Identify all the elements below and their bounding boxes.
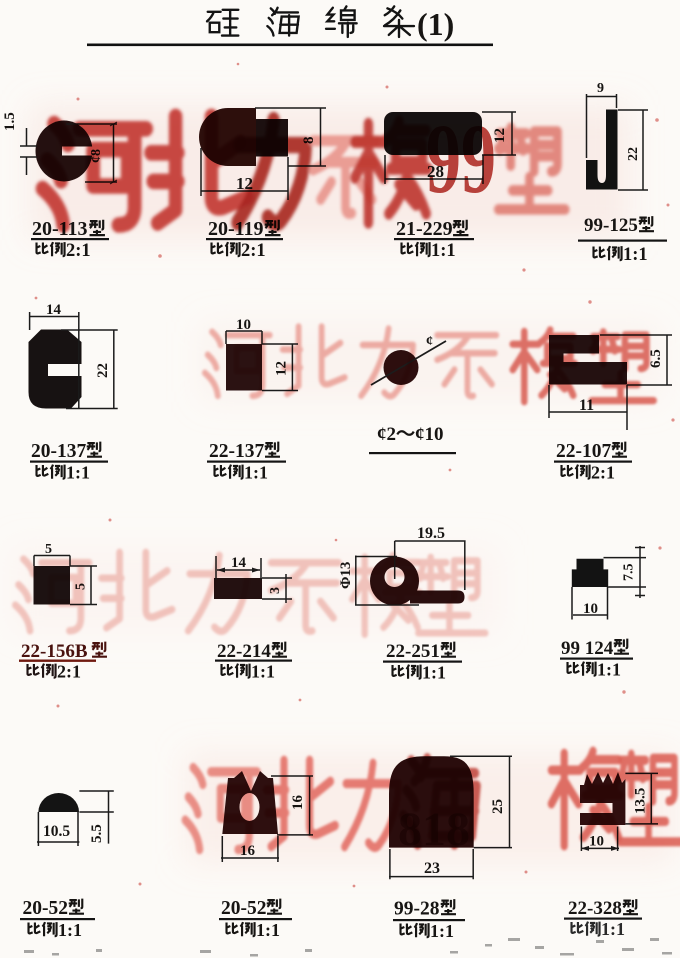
svg-text:22-251: 22-251 bbox=[386, 641, 440, 662]
svg-text:2:1: 2:1 bbox=[591, 463, 615, 483]
svg-text:10.5: 10.5 bbox=[43, 823, 70, 840]
svg-text:14: 14 bbox=[46, 302, 62, 318]
svg-text:1:1: 1:1 bbox=[422, 663, 446, 683]
svg-text:20-52: 20-52 bbox=[23, 898, 69, 919]
svg-text:2:1: 2:1 bbox=[66, 241, 91, 261]
svg-text:2:1: 2:1 bbox=[241, 241, 266, 261]
svg-text:1:1: 1:1 bbox=[66, 463, 90, 483]
svg-text:22-328: 22-328 bbox=[568, 898, 622, 919]
svg-text:1:1: 1:1 bbox=[597, 660, 621, 680]
svg-text:22-156B: 22-156B bbox=[21, 641, 88, 662]
svg-text:1:1: 1:1 bbox=[431, 241, 456, 261]
svg-text:1:1: 1:1 bbox=[430, 921, 454, 941]
svg-text:2:1: 2:1 bbox=[57, 662, 81, 682]
svg-text:99-28: 99-28 bbox=[394, 899, 440, 920]
svg-text:20-52: 20-52 bbox=[221, 898, 267, 919]
svg-text:20-137: 20-137 bbox=[31, 441, 86, 462]
svg-text:1:1: 1:1 bbox=[244, 463, 268, 483]
svg-text:¢2～¢10: ¢2～¢10 bbox=[377, 424, 444, 445]
svg-text:22-214: 22-214 bbox=[217, 641, 271, 662]
svg-text:1:1: 1:1 bbox=[58, 920, 82, 940]
svg-text:1:1: 1:1 bbox=[623, 245, 648, 265]
svg-text:1:1: 1:1 bbox=[601, 919, 625, 939]
svg-text:1:1: 1:1 bbox=[256, 920, 280, 940]
svg-text:1.5: 1.5 bbox=[2, 112, 18, 131]
svg-text:5.5: 5.5 bbox=[89, 824, 105, 843]
svg-text:22-107: 22-107 bbox=[556, 441, 611, 462]
svg-text:9: 9 bbox=[597, 81, 604, 96]
svg-text:19.5: 19.5 bbox=[417, 525, 445, 542]
svg-text:1:1: 1:1 bbox=[251, 662, 275, 682]
svg-text:(1): (1) bbox=[417, 6, 454, 42]
svg-text:7.5: 7.5 bbox=[622, 564, 637, 582]
svg-text:22-137: 22-137 bbox=[209, 441, 264, 462]
svg-text:99 124: 99 124 bbox=[561, 638, 614, 659]
svg-text:22: 22 bbox=[95, 363, 111, 378]
svg-text:10: 10 bbox=[583, 601, 598, 617]
